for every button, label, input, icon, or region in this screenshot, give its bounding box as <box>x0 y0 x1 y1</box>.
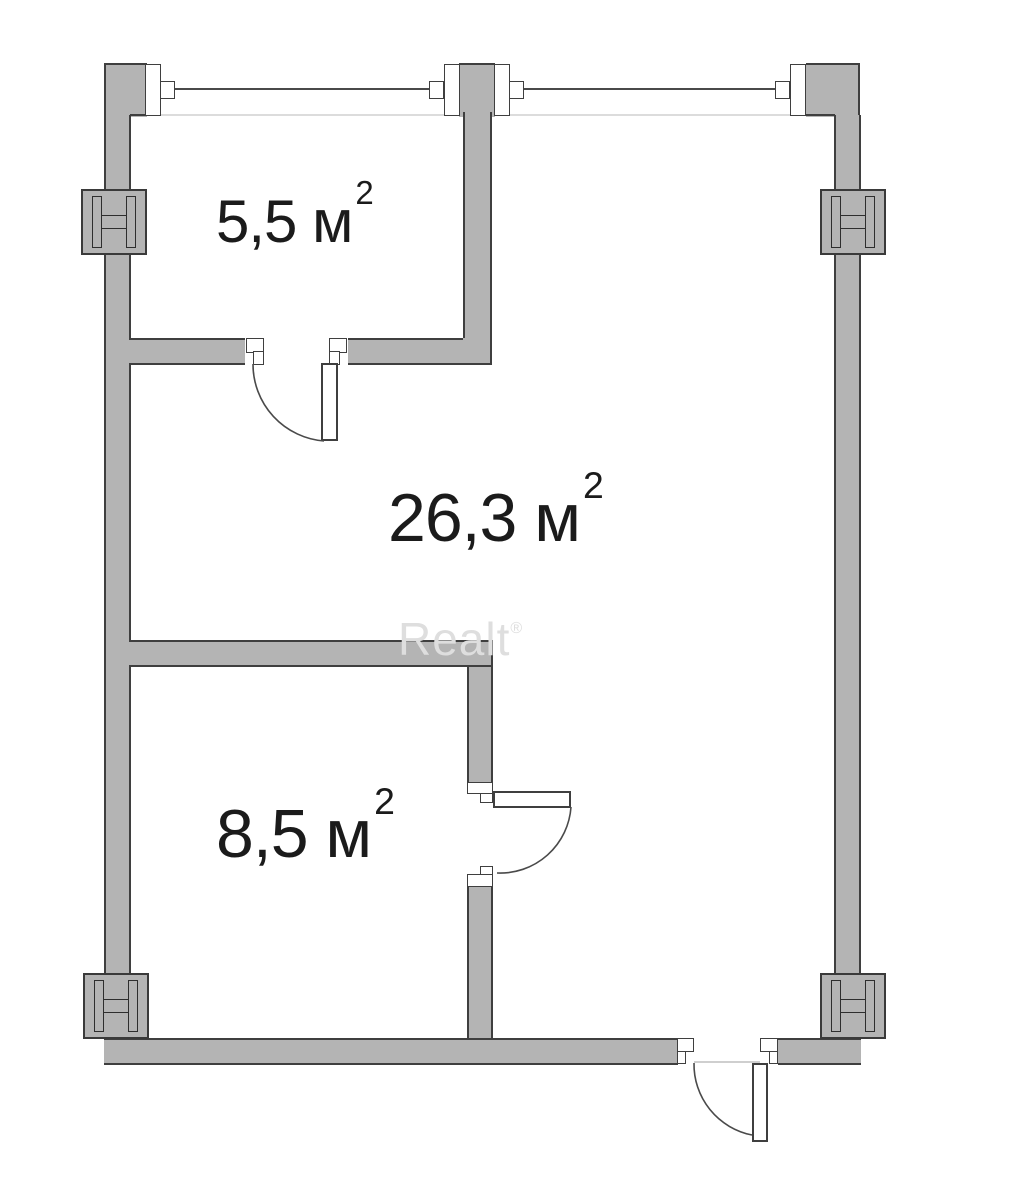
i-beam-icon <box>92 196 136 248</box>
door2-swing-arc <box>497 807 571 873</box>
steel-column-symbol-top-right <box>820 189 886 255</box>
window-connector <box>429 81 444 99</box>
window-jamb-band <box>494 64 510 116</box>
wall-room1-corner <box>463 338 492 365</box>
pier-top-center <box>459 63 495 117</box>
wall-room1-bottom-right <box>348 338 463 365</box>
steel-column-symbol-top-left <box>81 189 147 255</box>
wall-right <box>834 115 861 1065</box>
registered-mark: ® <box>510 620 523 637</box>
floorplan-canvas: 5,5 м2 26,3 м2 8,5 м2 Realt® <box>0 0 1019 1200</box>
pier-top-right <box>806 63 860 117</box>
pier-step-line <box>130 114 146 116</box>
pier-top-left <box>104 63 147 117</box>
i-beam-icon <box>831 980 875 1032</box>
door2-jamb-bottom <box>467 874 493 887</box>
area-value: 26,3 м <box>388 480 580 556</box>
window-jamb-band <box>145 64 161 116</box>
wall-room1-bottom-left <box>129 338 245 365</box>
door1-swing-arc <box>253 364 324 441</box>
room-area-label-26-3: 26,3 м2 <box>388 484 604 552</box>
area-value: 5,5 м <box>216 188 352 255</box>
window-line-right <box>523 88 776 90</box>
pier-step-line <box>806 114 835 116</box>
area-superscript: 2 <box>583 464 604 506</box>
i-beam-icon <box>94 980 138 1032</box>
watermark-text: Realt <box>398 613 510 665</box>
watermark: Realt® <box>398 612 523 666</box>
door2-leaf <box>493 791 571 808</box>
door3-swing-arc <box>694 1063 752 1135</box>
wall-room2-right-lower <box>467 887 493 1038</box>
door3-leaf <box>752 1063 768 1142</box>
door3-jamb-left-lip <box>677 1051 686 1064</box>
window-connector <box>509 81 524 99</box>
area-superscript: 2 <box>355 174 373 211</box>
door1-jamb-left-lip <box>253 351 264 365</box>
window-jamb-band <box>444 64 460 116</box>
wall-bottom-left-segment <box>104 1038 678 1065</box>
wall-bottom-right-segment <box>778 1038 861 1065</box>
wall-room1-right <box>463 112 492 338</box>
door2-jamb-top-lip <box>480 793 493 803</box>
room-area-label-5-5: 5,5 м2 <box>216 192 374 252</box>
room-area-label-8-5: 8,5 м2 <box>216 800 395 868</box>
area-value: 8,5 м <box>216 796 371 872</box>
window-connector <box>160 81 175 99</box>
door3-jamb-right <box>760 1038 778 1052</box>
door3-jamb-left <box>677 1038 694 1052</box>
door3-threshold-line <box>694 1061 760 1063</box>
steel-column-symbol-bottom-right <box>820 973 886 1039</box>
door3-jamb-right-lip <box>769 1051 778 1064</box>
door1-leaf <box>321 363 338 441</box>
wall-room2-right-upper <box>467 667 493 782</box>
i-beam-icon <box>831 196 875 248</box>
window-line-left <box>174 88 430 90</box>
area-superscript: 2 <box>374 780 395 822</box>
window-connector <box>775 81 790 99</box>
window-jamb-band <box>790 64 806 116</box>
steel-column-symbol-bottom-left <box>83 973 149 1039</box>
wall-left <box>104 115 131 1065</box>
